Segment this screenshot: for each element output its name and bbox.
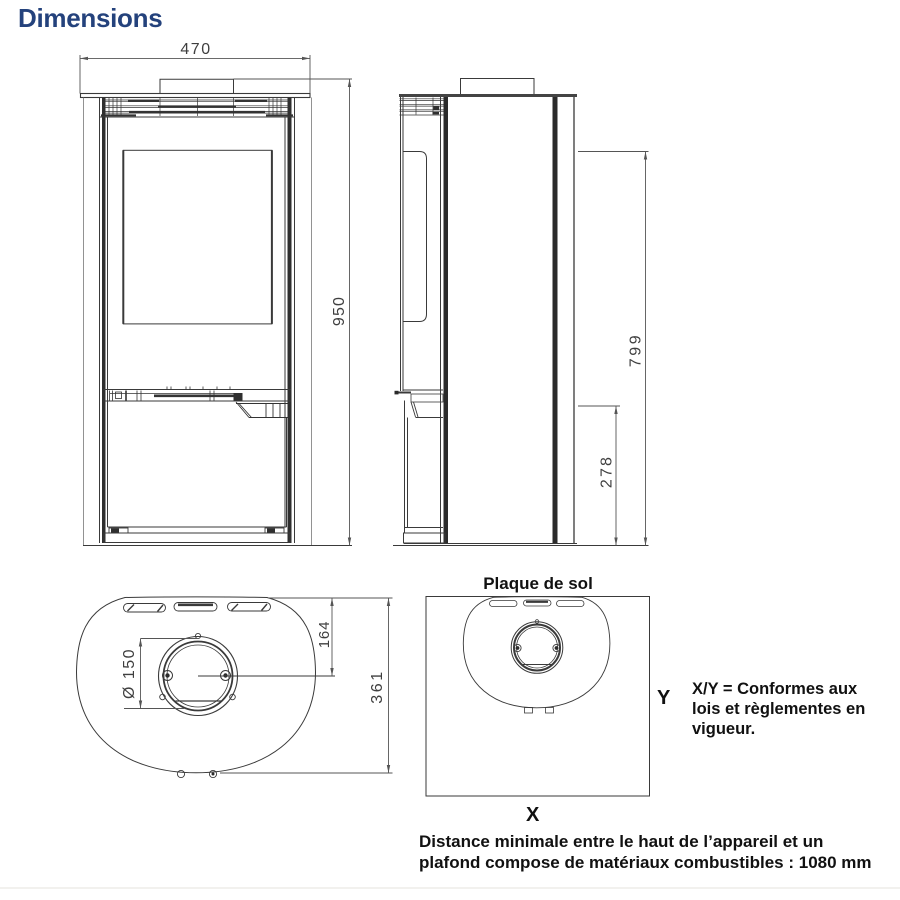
svg-text:361: 361 bbox=[369, 669, 386, 704]
svg-text:278: 278 bbox=[599, 455, 616, 488]
svg-text:Ø 150: Ø 150 bbox=[121, 648, 138, 699]
svg-text:799: 799 bbox=[628, 333, 645, 368]
svg-text:164: 164 bbox=[316, 621, 333, 648]
svg-text:950: 950 bbox=[331, 296, 348, 326]
svg-text:470: 470 bbox=[180, 41, 211, 58]
